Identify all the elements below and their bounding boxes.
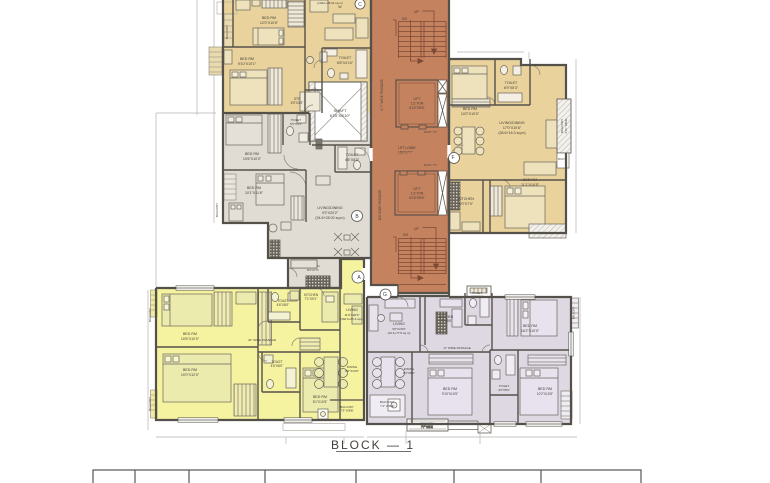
svg-text:BED RM: BED RM: [262, 16, 276, 20]
svg-text:9'10"X10'1": 9'10"X10'1": [238, 62, 257, 66]
svg-text:BED RM: BED RM: [463, 107, 477, 111]
svg-text:BLOCK — 1: BLOCK — 1: [331, 438, 415, 452]
svg-text:15'0"X7'7": 15'0"X7'7": [398, 151, 412, 155]
svg-text:9'3"X20'2": 9'3"X20'2": [322, 211, 339, 215]
svg-text:LIVING/DINING: LIVING/DINING: [317, 206, 343, 210]
svg-text:7'1" WIDE: 7'1" WIDE: [380, 404, 394, 408]
svg-text:6'10"X6'10": 6'10"X6'10": [330, 113, 351, 118]
svg-text:7'7" WIDE: 7'7" WIDE: [421, 425, 433, 429]
svg-text:DUCT 7'7": DUCT 7'7": [424, 130, 437, 134]
svg-text:10'1"X11'6": 10'1"X11'6": [245, 191, 264, 195]
svg-text:2'11" WIDE: 2'11" WIDE: [564, 118, 568, 133]
svg-text:4'6"X8'0": 4'6"X8'0": [271, 364, 284, 368]
svg-text:16'2"X10'0": 16'2"X10'0": [521, 329, 540, 333]
svg-text:4'6"X8'0": 4'6"X8'0": [345, 158, 360, 162]
svg-text:7'2"X8'6": 7'2"X8'6": [440, 319, 453, 323]
svg-text:1.5 TON: 1.5 TON: [411, 192, 424, 196]
svg-text:BED RM: BED RM: [523, 324, 537, 328]
svg-text:TOILET: TOILET: [339, 56, 352, 60]
svg-text:LIVING: LIVING: [346, 308, 358, 312]
svg-text:LIFT: LIFT: [414, 187, 421, 191]
svg-text:6'10"X5'6": 6'10"X5'6": [409, 106, 425, 110]
svg-text:8'0"X7'0": 8'0"X7'0": [307, 268, 319, 272]
svg-text:DUCT 7'7": DUCT 7'7": [424, 163, 437, 167]
svg-text:BED RM: BED RM: [245, 152, 259, 156]
svg-text:(34.6+28.02 sq.m): (34.6+28.02 sq.m): [315, 216, 344, 220]
svg-text:5'5"X3'3": 5'5"X3'3": [291, 101, 304, 105]
svg-text:9'10"X10'5": 9'10"X10'5": [442, 392, 458, 396]
svg-text:BALCONY: BALCONY: [148, 308, 152, 322]
svg-text:G: G: [383, 292, 387, 298]
svg-text:(140A+38.02 sq.m): (140A+38.02 sq.m): [317, 1, 343, 5]
svg-text:UP: UP: [414, 227, 419, 231]
svg-text:BED RM: BED RM: [443, 387, 457, 391]
svg-text:6'9"X5'3": 6'9"X5'3": [504, 86, 519, 90]
svg-text:11'1"X10'5": 11'1"X10'5": [521, 183, 540, 187]
svg-text:BALCONY: BALCONY: [225, 25, 229, 39]
svg-text:8'0"X7'0": 8'0"X7'0": [459, 202, 474, 206]
svg-text:(34.6+77.8 sq.m): (34.6+77.8 sq.m): [388, 331, 411, 335]
svg-text:17'0"X10'6": 17'0"X10'6": [503, 126, 522, 130]
svg-text:BED RM: BED RM: [247, 186, 261, 190]
svg-text:100 WIDE PASSAGE: 100 WIDE PASSAGE: [378, 190, 382, 220]
svg-text:TOILET: TOILET: [346, 153, 359, 157]
svg-text:6'8"X4'10": 6'8"X4'10": [337, 61, 354, 65]
svg-text:LIFT: LIFT: [414, 97, 421, 101]
svg-text:BED RM: BED RM: [538, 387, 552, 391]
svg-text:1.5 TON: 1.5 TON: [411, 102, 424, 106]
svg-text:12'0"X10'6": 12'0"X10'6": [260, 21, 279, 25]
svg-text:8'0"X10'6": 8'0"X10'6": [345, 369, 359, 373]
svg-text:10'0"X10'0": 10'0"X10'0": [461, 112, 480, 116]
svg-text:BALCONY: BALCONY: [148, 397, 152, 411]
svg-text:TOILET: TOILET: [505, 81, 518, 85]
svg-text:10'6"X10'0": 10'6"X10'0": [181, 337, 200, 341]
svg-text:DN: DN: [402, 17, 407, 21]
svg-text:DN: DN: [403, 233, 408, 237]
svg-text:4'6"X8'0": 4'6"X8'0": [277, 303, 290, 307]
svg-text:LIFT LOBBY: LIFT LOBBY: [398, 146, 417, 150]
svg-text:17' WIDE PASSAGE: 17' WIDE PASSAGE: [443, 346, 471, 350]
svg-text:10'0"X12'0": 10'0"X12'0": [181, 373, 200, 377]
svg-text:BED RM: BED RM: [240, 57, 254, 61]
svg-text:F: F: [451, 155, 454, 161]
svg-text:7'1"X9'1": 7'1"X9'1": [305, 297, 318, 301]
svg-text:5'5"X3'3": 5'5"X3'3": [290, 122, 302, 126]
svg-text:(460.6+65.3 sqm): (460.6+65.3 sqm): [340, 317, 364, 321]
svg-text:W: W: [338, 5, 342, 9]
svg-text:C: C: [358, 2, 362, 8]
svg-text:LIVING/DINING: LIVING/DINING: [499, 121, 525, 125]
svg-text:32" WIDE PASSAGE: 32" WIDE PASSAGE: [248, 338, 276, 342]
svg-text:7'5" WIDE: 7'5" WIDE: [341, 409, 354, 413]
svg-text:10'2"X10'5": 10'2"X10'5": [537, 392, 553, 396]
svg-text:BED RM: BED RM: [313, 395, 327, 399]
svg-text:(38.6+16.3 sq.m): (38.6+16.3 sq.m): [498, 131, 525, 135]
svg-text:BALCONY: BALCONY: [215, 203, 219, 217]
svg-text:KITCHEN: KITCHEN: [458, 197, 474, 201]
svg-text:6'10"X5'6": 6'10"X5'6": [409, 196, 425, 200]
svg-text:10'6"X10'0": 10'6"X10'0": [243, 157, 262, 161]
svg-text:4'6"X8'0": 4'6"X8'0": [498, 388, 510, 392]
svg-text:BED RM: BED RM: [183, 332, 197, 336]
svg-text:LIVING: LIVING: [393, 322, 405, 326]
svg-text:9'0"X8'0": 9'0"X8'0": [403, 371, 415, 375]
svg-text:8'1"X10'5": 8'1"X10'5": [313, 400, 327, 404]
svg-text:BED RM: BED RM: [183, 368, 197, 372]
svg-text:4'-7" WIDE PASSAGE: 4'-7" WIDE PASSAGE: [380, 79, 384, 110]
svg-text:UP: UP: [414, 10, 419, 14]
